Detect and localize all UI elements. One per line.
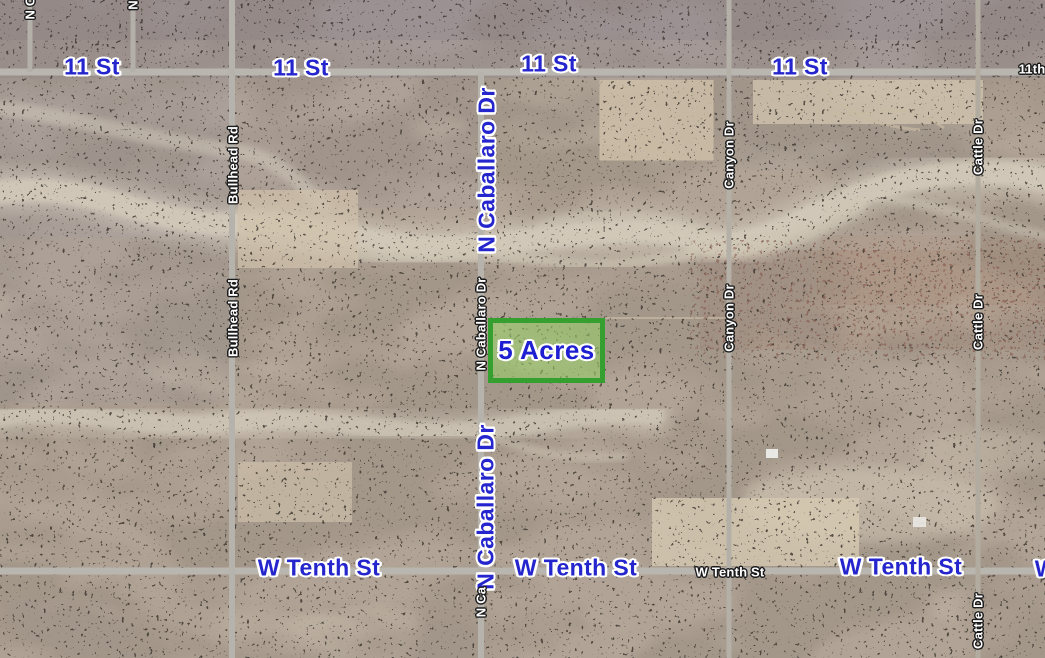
- road-label-canyon-dr: Canyon Dr: [723, 284, 736, 352]
- road-label-w-tenth-st: W Tenth St: [1035, 558, 1045, 581]
- satellite-map[interactable]: 5 Acres 11 St11 St11 St11 StN Caballaro …: [0, 0, 1045, 658]
- road-label-canyon-dr: Canyon Dr: [723, 121, 736, 189]
- road-label-w-tenth-st: W Tenth St: [696, 566, 765, 579]
- road-label-11th: 11th: [1019, 63, 1045, 76]
- road-label-bullhead-rd: Bullhead Rd: [227, 279, 240, 357]
- road-label-bullhead-rd: Bullhead Rd: [227, 126, 240, 204]
- road-label-n-caballaro-dr: N Caballaro Dr: [475, 424, 498, 589]
- road-label-n-caballaro-dr: N Caballaro Dr: [475, 277, 488, 370]
- road-label-n-c: N C: [24, 0, 37, 20]
- road-label-w-tenth-st: W Tenth St: [840, 556, 962, 579]
- road-label-n-caballaro-dr: N Caballaro Dr: [476, 87, 499, 252]
- road-label-n: N: [127, 0, 140, 10]
- road-label-w-tenth-st: W Tenth St: [515, 557, 637, 580]
- road-label-11-st: 11 St: [772, 56, 828, 79]
- road-label-11-st: 11 St: [273, 57, 329, 80]
- road-label-cattle-dr: Cattle Dr: [972, 593, 985, 649]
- road-label-cattle-dr: Cattle Dr: [972, 119, 985, 175]
- road-label-11-st: 11 St: [521, 53, 577, 76]
- road-label-n-ca: N Ca: [475, 587, 488, 617]
- road-label-11-st: 11 St: [64, 56, 120, 79]
- road-label-cattle-dr: Cattle Dr: [972, 294, 985, 350]
- road-label-w-tenth-st: W Tenth St: [258, 557, 380, 580]
- map-labels-layer: 11 St11 St11 St11 StN Caballaro DrN Caba…: [0, 0, 1045, 658]
